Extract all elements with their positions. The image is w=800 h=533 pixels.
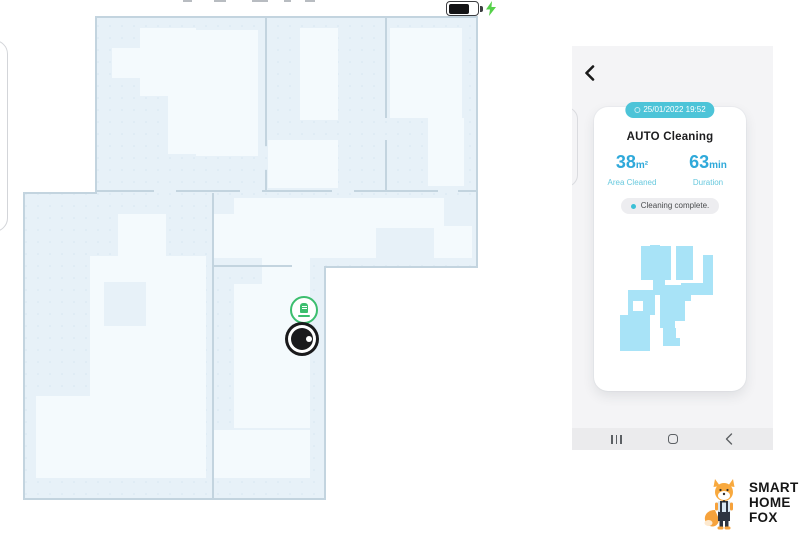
cleaned-area-blob-icon <box>618 245 714 359</box>
brand-logo-text: SMART HOME FOX <box>749 480 799 525</box>
previous-card-edge <box>572 107 578 187</box>
status-text: Cleaning complete. <box>641 202 709 210</box>
nav-back-chevron-icon <box>725 433 733 445</box>
status-dot-icon <box>631 204 636 209</box>
recents-bars-icon <box>611 435 622 444</box>
stat-duration: 63min Duration <box>670 153 746 187</box>
charging-dock-icon <box>290 296 318 324</box>
home-outline-icon <box>668 434 678 444</box>
logo-line-1: SMART <box>749 480 799 495</box>
recents-button[interactable] <box>589 428 645 450</box>
area-label: Area Cleaned <box>594 178 670 187</box>
logo-line-3: FOX <box>749 510 799 525</box>
phone-nav-bar <box>572 428 773 450</box>
back-button[interactable] <box>580 64 600 84</box>
cleaning-session-card: 25/01/2022 19:52 AUTO Cleaning 38m² Area… <box>594 107 746 391</box>
fox-mascot-icon <box>703 474 745 531</box>
session-date-badge: 25/01/2022 19:52 <box>625 102 714 118</box>
session-timestamp: 25/01/2022 19:52 <box>643 106 705 114</box>
stat-area-cleaned: 38m² Area Cleaned <box>594 153 670 187</box>
clock-icon <box>634 107 640 113</box>
back-chevron-icon <box>584 65 596 81</box>
duration-label: Duration <box>670 178 746 187</box>
floor-map[interactable] <box>0 0 530 533</box>
duration-unit: min <box>709 160 727 171</box>
area-value: 38 <box>616 152 636 172</box>
brand-logo: SMART HOME FOX <box>703 474 799 531</box>
robot-vacuum-icon <box>285 322 319 356</box>
session-title: AUTO Cleaning <box>594 131 746 143</box>
duration-value: 63 <box>689 152 709 172</box>
session-stats: 38m² Area Cleaned 63min Duration <box>594 153 746 187</box>
home-button[interactable] <box>645 428 701 450</box>
area-unit: m² <box>636 160 648 171</box>
logo-line-2: HOME <box>749 495 799 510</box>
nav-back-button[interactable] <box>701 428 757 450</box>
phone-screen: 25/01/2022 19:52 AUTO Cleaning 38m² Area… <box>572 46 773 450</box>
status-badge: Cleaning complete. <box>621 198 719 214</box>
